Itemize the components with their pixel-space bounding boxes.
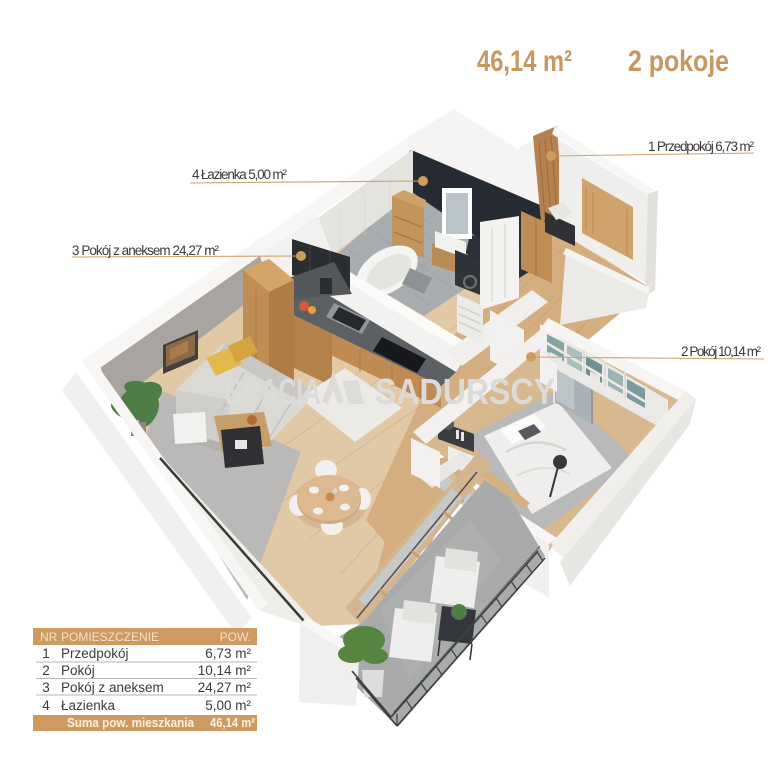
svg-text:2 Pokój 10,14 m²: 2 Pokój 10,14 m² bbox=[681, 344, 762, 359]
svg-text:Suma pow. mieszkania: Suma pow. mieszkania bbox=[67, 716, 195, 730]
svg-text:24,27 m²: 24,27 m² bbox=[198, 680, 252, 695]
svg-text:6,73 m²: 6,73 m² bbox=[205, 646, 251, 661]
svg-text:Łazienka: Łazienka bbox=[61, 698, 116, 713]
svg-text:BRACIA: BRACIA bbox=[225, 371, 321, 412]
svg-text:46,14 m²: 46,14 m² bbox=[477, 45, 572, 78]
svg-text:1 Przedpokój 6,73 m²: 1 Przedpokój 6,73 m² bbox=[648, 139, 755, 154]
svg-text:Pokój: Pokój bbox=[61, 663, 95, 678]
svg-text:Pokój z aneksem: Pokój z aneksem bbox=[61, 680, 164, 695]
svg-text:POMIESZCZENIE: POMIESZCZENIE bbox=[61, 630, 159, 644]
svg-text:SADURSCY: SADURSCY bbox=[375, 371, 555, 412]
svg-text:4: 4 bbox=[42, 698, 50, 713]
svg-text:46,14 m²: 46,14 m² bbox=[210, 716, 255, 730]
svg-text:POW.: POW. bbox=[220, 630, 251, 644]
svg-text:5,00 m²: 5,00 m² bbox=[205, 698, 251, 713]
svg-text:4 Łazienka 5,00 m²: 4 Łazienka 5,00 m² bbox=[192, 167, 288, 182]
svg-text:2: 2 bbox=[42, 663, 50, 678]
svg-text:1: 1 bbox=[42, 646, 50, 661]
svg-text:NR: NR bbox=[40, 630, 58, 644]
svg-text:3 Pokój z aneksem 24,27 m²: 3 Pokój z aneksem 24,27 m² bbox=[72, 243, 220, 258]
svg-text:Przedpokój: Przedpokój bbox=[61, 646, 129, 661]
svg-text:3: 3 bbox=[42, 680, 50, 695]
svg-text:2 pokoje: 2 pokoje bbox=[628, 45, 729, 78]
svg-text:10,14 m²: 10,14 m² bbox=[198, 663, 252, 678]
